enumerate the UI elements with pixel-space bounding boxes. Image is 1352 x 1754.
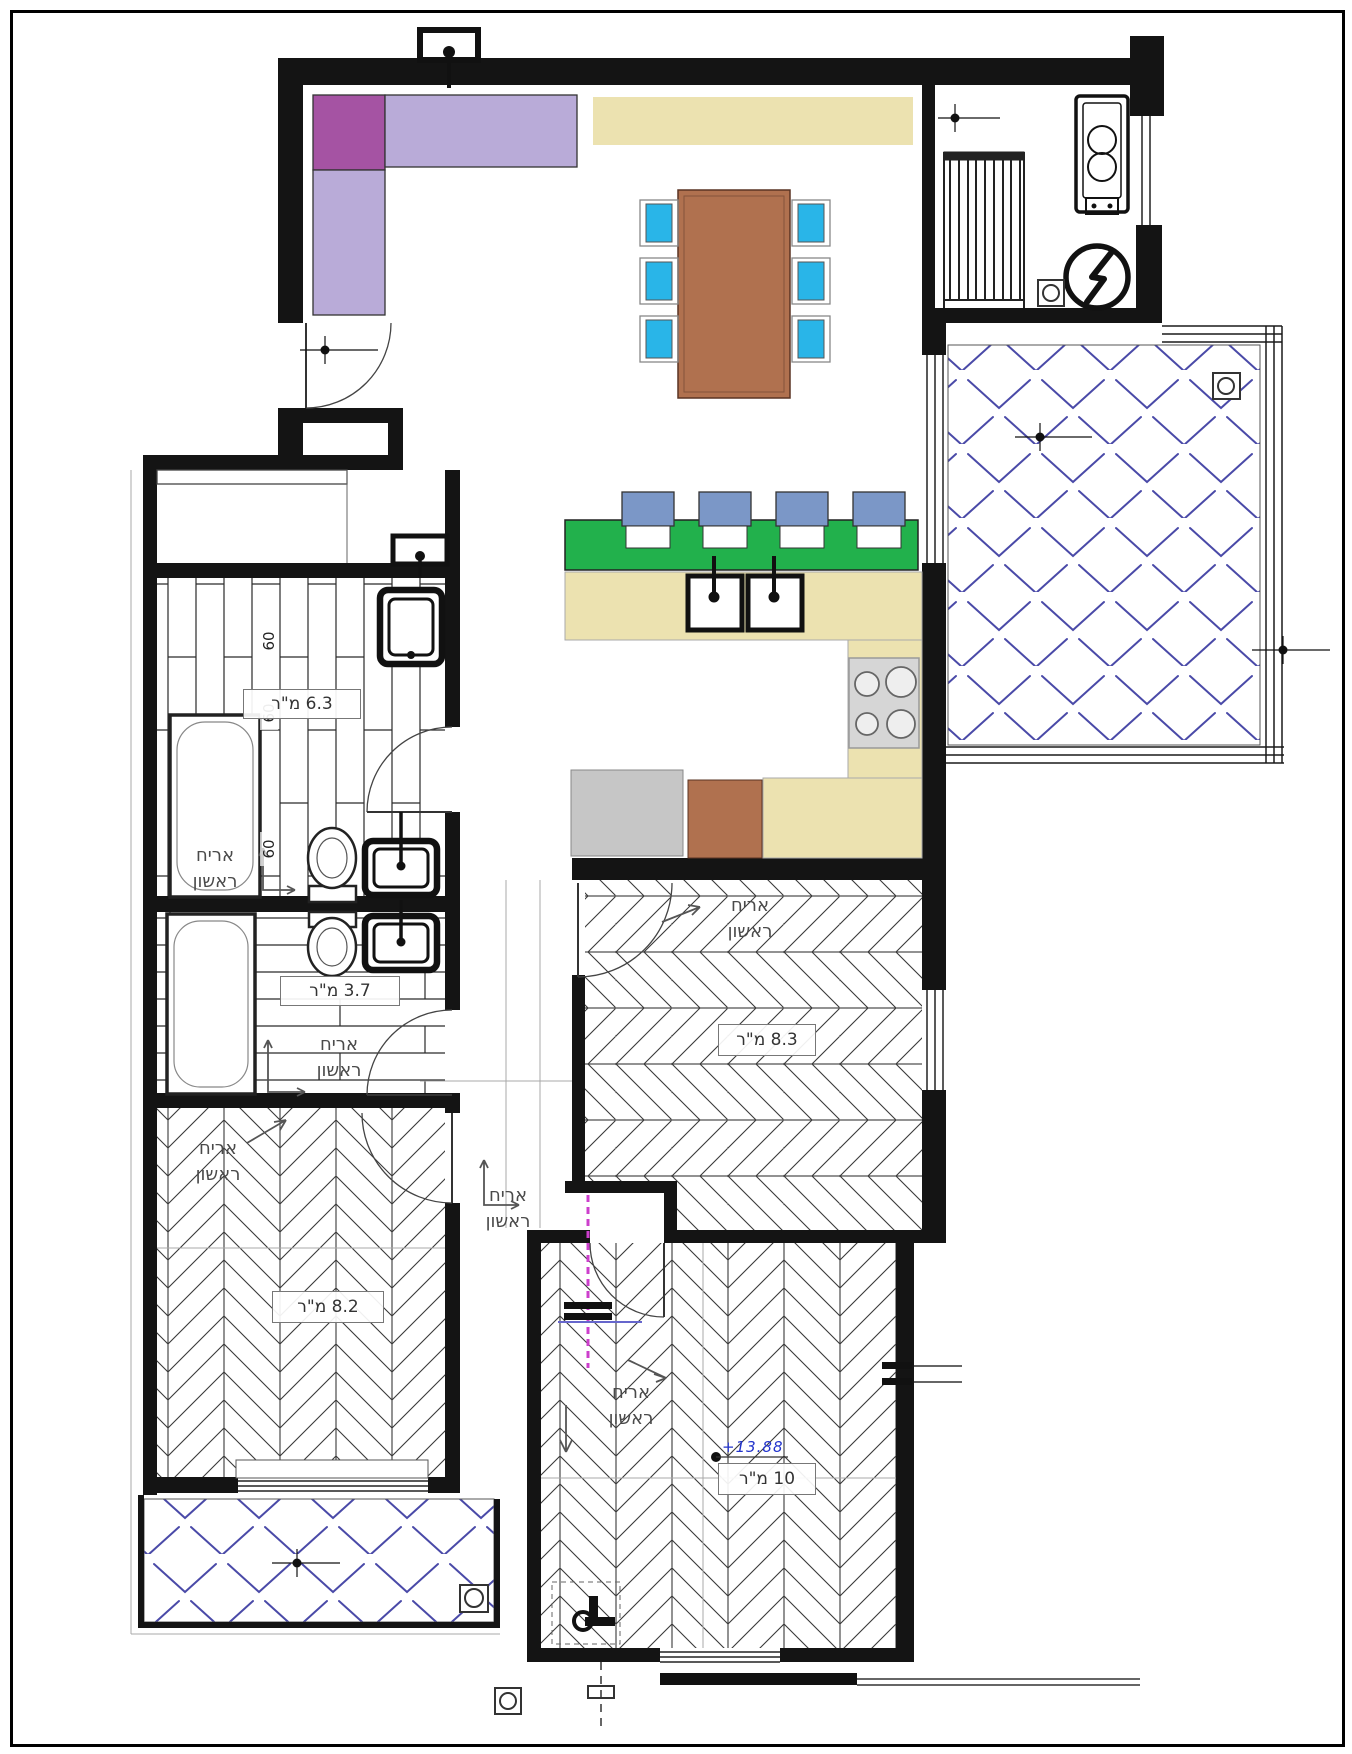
kitchen: [565, 492, 922, 858]
window-sill: [236, 1460, 428, 1478]
area-label-bedroom-left: 8.2 מ"ר: [272, 1291, 384, 1323]
first-tile-note: אריח ראשון: [462, 1183, 554, 1235]
first-tile-note: אריח ראשון: [172, 843, 258, 895]
tile-size-60: 60: [260, 832, 278, 866]
toilet: [308, 828, 356, 902]
balcony-bottom-floor: [144, 1499, 494, 1622]
staircase: [944, 152, 1024, 308]
sofa: [313, 95, 577, 315]
refrigerator: [571, 770, 683, 856]
bathtub: [167, 914, 255, 1094]
entry-closet: [157, 470, 347, 484]
toilet: [308, 912, 356, 976]
area-label-bedroom-middle: 8.3 מ"ר: [718, 1024, 816, 1056]
tile-size-60: 60: [260, 624, 278, 658]
first-tile-word2: ראשון: [193, 871, 238, 892]
electric-panel-icon: [1066, 246, 1128, 308]
boiler-icon: [1076, 96, 1128, 214]
area-label-bathroom-large: 6.3 מ"ר: [243, 689, 361, 719]
first-tile-note: אריח ראשון: [170, 1136, 266, 1188]
area-label-bathroom-small: 3.7 מ"ר: [280, 976, 400, 1006]
stove-icon: [849, 658, 919, 748]
dining-table-set: [640, 190, 830, 398]
first-tile-note: אריח ראשון: [700, 893, 800, 945]
first-tile-note: אריח ראשון: [585, 1380, 677, 1432]
oven-cabinet: [688, 780, 762, 858]
first-tile-word1: אריח: [196, 845, 234, 866]
balcony-right-floor: [948, 345, 1260, 745]
sideboard: [593, 97, 913, 145]
lower-terrace-edge: [588, 1662, 1140, 1728]
first-tile-note: אריח ראשון: [296, 1032, 382, 1084]
floor-plan-page: 6.3 מ"ר 3.7 מ"ר 8.3 מ"ר 8.2 מ"ר 10 מ"ר א…: [0, 0, 1352, 1754]
elevation-marker: +13.88: [722, 1438, 784, 1456]
area-label-bedroom-bottom: 10 מ"ר: [718, 1463, 816, 1495]
